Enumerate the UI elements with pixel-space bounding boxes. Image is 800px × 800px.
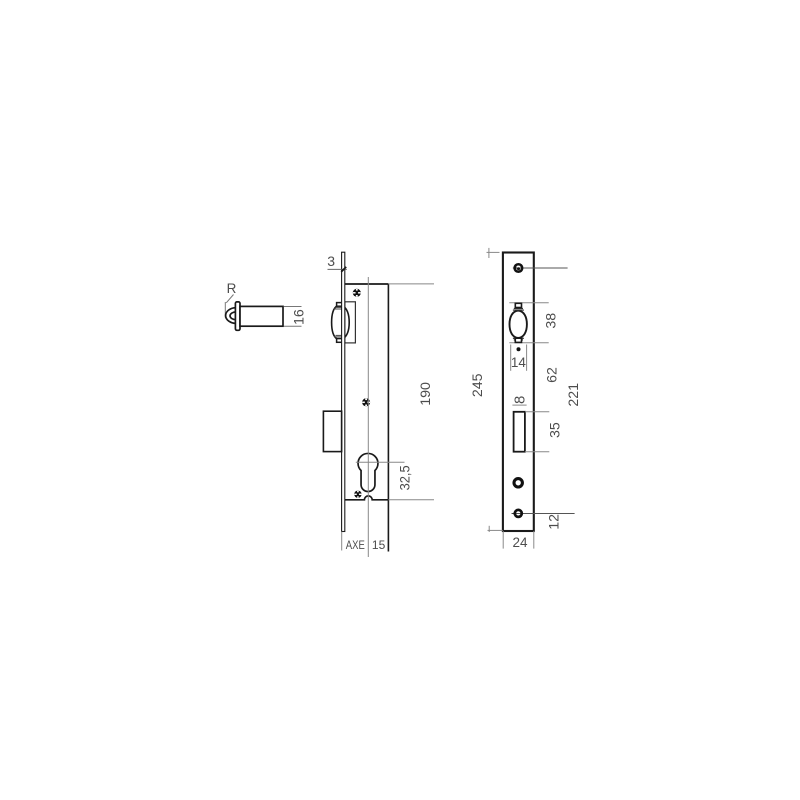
svg-text:245: 245	[470, 373, 486, 397]
svg-text:16: 16	[291, 309, 307, 325]
svg-text:12: 12	[547, 514, 563, 530]
svg-text:8: 8	[512, 396, 529, 404]
svg-text:AXE: AXE	[346, 540, 365, 552]
svg-text:62: 62	[544, 367, 560, 383]
svg-text:32,5: 32,5	[397, 465, 413, 490]
svg-text:24: 24	[512, 535, 528, 550]
svg-text:38: 38	[544, 313, 560, 329]
svg-text:3: 3	[327, 253, 335, 269]
svg-text:190: 190	[418, 382, 434, 406]
svg-text:R: R	[227, 281, 237, 296]
svg-text:221: 221	[566, 383, 582, 407]
svg-text:14: 14	[511, 355, 527, 370]
svg-text:15: 15	[372, 538, 386, 552]
svg-text:35: 35	[547, 422, 563, 438]
